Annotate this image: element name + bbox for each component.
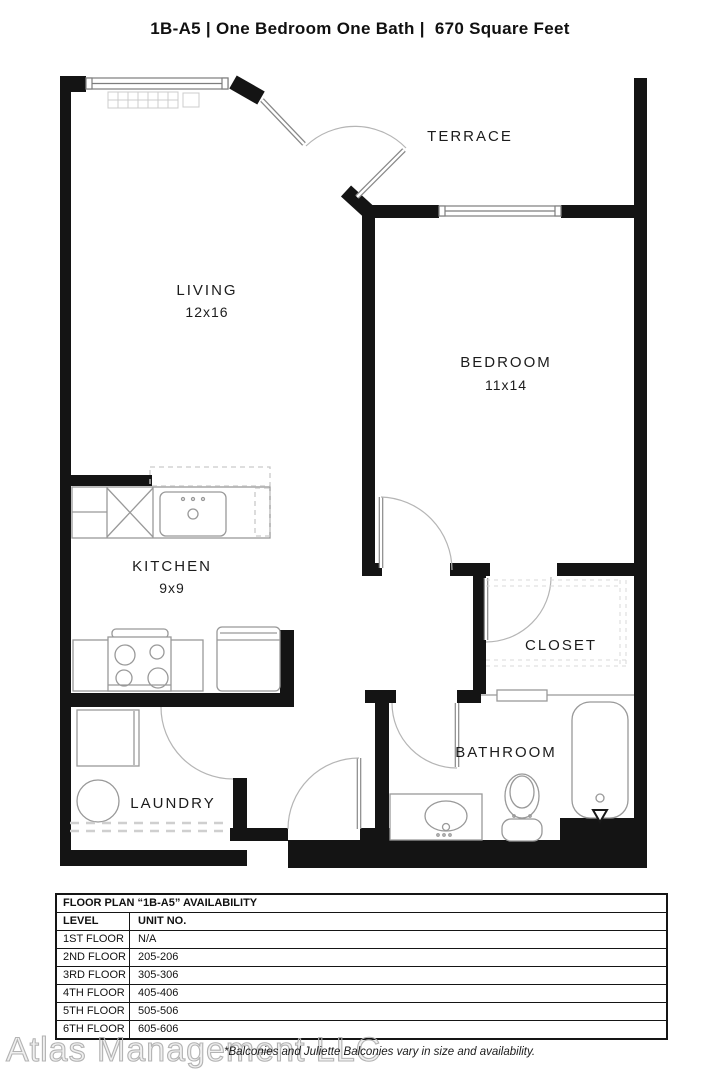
wall-kitchen-hall-stub xyxy=(280,630,294,707)
wall-bathroom-west xyxy=(375,690,389,842)
table-row: 3RD FLOOR 305-306 xyxy=(57,967,666,985)
wall-bottom-main xyxy=(288,840,647,868)
unit-cell: 505-506 xyxy=(130,1003,666,1020)
wall-angled-top xyxy=(233,82,261,98)
bedroom-window xyxy=(439,206,561,216)
floor-plan-page: 1B-A5 | One Bedroom One Bath | 670 Squar… xyxy=(0,0,720,1080)
bedroom-dimensions: 11x14 xyxy=(485,377,527,393)
availability-table: FLOOR PLAN “1B-A5” AVAILABILITY LEVEL UN… xyxy=(55,893,668,1040)
baseboard-grille xyxy=(108,92,199,108)
table-row: 5TH FLOOR 505-506 xyxy=(57,1003,666,1021)
unit-cell: 305-306 xyxy=(130,967,666,984)
laundry-door-swing-arc xyxy=(161,707,233,779)
terrace-label: TERRACE xyxy=(427,128,513,145)
bedroom-door-swing-arc xyxy=(381,497,452,570)
level-cell: 4TH FLOOR xyxy=(57,985,130,1002)
stove xyxy=(108,629,171,691)
toilet xyxy=(502,774,542,841)
closet-label: CLOSET xyxy=(525,637,597,654)
wall-right xyxy=(634,78,647,845)
living-label: LIVING xyxy=(176,282,237,299)
wall-laundry-north xyxy=(60,693,294,707)
kitchen-dimensions: 9x9 xyxy=(159,580,185,596)
unit-cell: 405-406 xyxy=(130,985,666,1002)
wall-laundry-east xyxy=(233,778,247,841)
wall-bedroom-top-left xyxy=(362,205,439,218)
laundry-dashed-shelf xyxy=(70,823,228,831)
wall-bedroom-door-east-jamb xyxy=(450,563,490,576)
wall-bedroom-west xyxy=(362,218,375,563)
availability-table-title: FLOOR PLAN “1B-A5” AVAILABILITY xyxy=(57,895,666,913)
unit-cell: N/A xyxy=(130,931,666,948)
column-header-unit: UNIT NO. xyxy=(130,913,666,930)
terrace-door-swing-arc xyxy=(306,126,406,148)
table-header-row: LEVEL UNIT NO. xyxy=(57,913,666,931)
laundry-fixtures xyxy=(70,710,228,831)
utility-closet-box xyxy=(77,710,139,766)
wall-bedroom-top-right xyxy=(561,205,647,218)
unit-cell: 205-206 xyxy=(130,949,666,966)
washer xyxy=(77,780,119,822)
exterior-walls xyxy=(60,76,647,868)
bathroom-fixtures xyxy=(390,690,634,841)
level-cell: 5TH FLOOR xyxy=(57,1003,130,1020)
bedroom-label: BEDROOM xyxy=(460,354,552,371)
wall-bottom-laundry xyxy=(60,850,247,866)
table-row: 4TH FLOOR 405-406 xyxy=(57,985,666,1003)
wall-left xyxy=(60,76,71,866)
kitchen-label: KITCHEN xyxy=(132,558,212,575)
column-header-level: LEVEL xyxy=(57,913,130,930)
bathtub xyxy=(572,702,628,822)
closet-door-swing-arc xyxy=(486,577,551,642)
level-cell: 2ND FLOOR xyxy=(57,949,130,966)
bath-shelf-niche xyxy=(497,690,547,701)
kitchen-fixtures xyxy=(72,467,280,691)
wall-closet-north xyxy=(557,563,647,576)
wall-entry-jamb xyxy=(360,828,390,844)
vanity-sink xyxy=(390,794,482,840)
table-row: 1ST FLOOR N/A xyxy=(57,931,666,949)
balcony-disclaimer: *Balconies and Juliette Balconies vary i… xyxy=(224,1046,535,1058)
laundry-label: LAUNDRY xyxy=(130,795,215,812)
bathroom-door-swing-arc xyxy=(392,703,457,768)
wall-living-kitchen-divider xyxy=(70,475,152,486)
windows xyxy=(86,78,561,216)
living-dimensions: 12x16 xyxy=(185,304,228,320)
living-window xyxy=(86,78,228,89)
table-row: 2ND FLOOR 205-206 xyxy=(57,949,666,967)
refrigerator xyxy=(217,627,280,691)
wall-top-left-corner xyxy=(60,76,86,92)
terrace-french-doors xyxy=(262,100,406,197)
entry-door-swing-arc xyxy=(288,758,359,829)
level-cell: 1ST FLOOR xyxy=(57,931,130,948)
bathroom-label: BATHROOM xyxy=(455,744,557,761)
floor-plan-drawing xyxy=(0,0,720,885)
wall-bathroom-north-b xyxy=(457,690,481,703)
wall-tub-step xyxy=(560,818,647,842)
level-cell: 3RD FLOOR xyxy=(57,967,130,984)
